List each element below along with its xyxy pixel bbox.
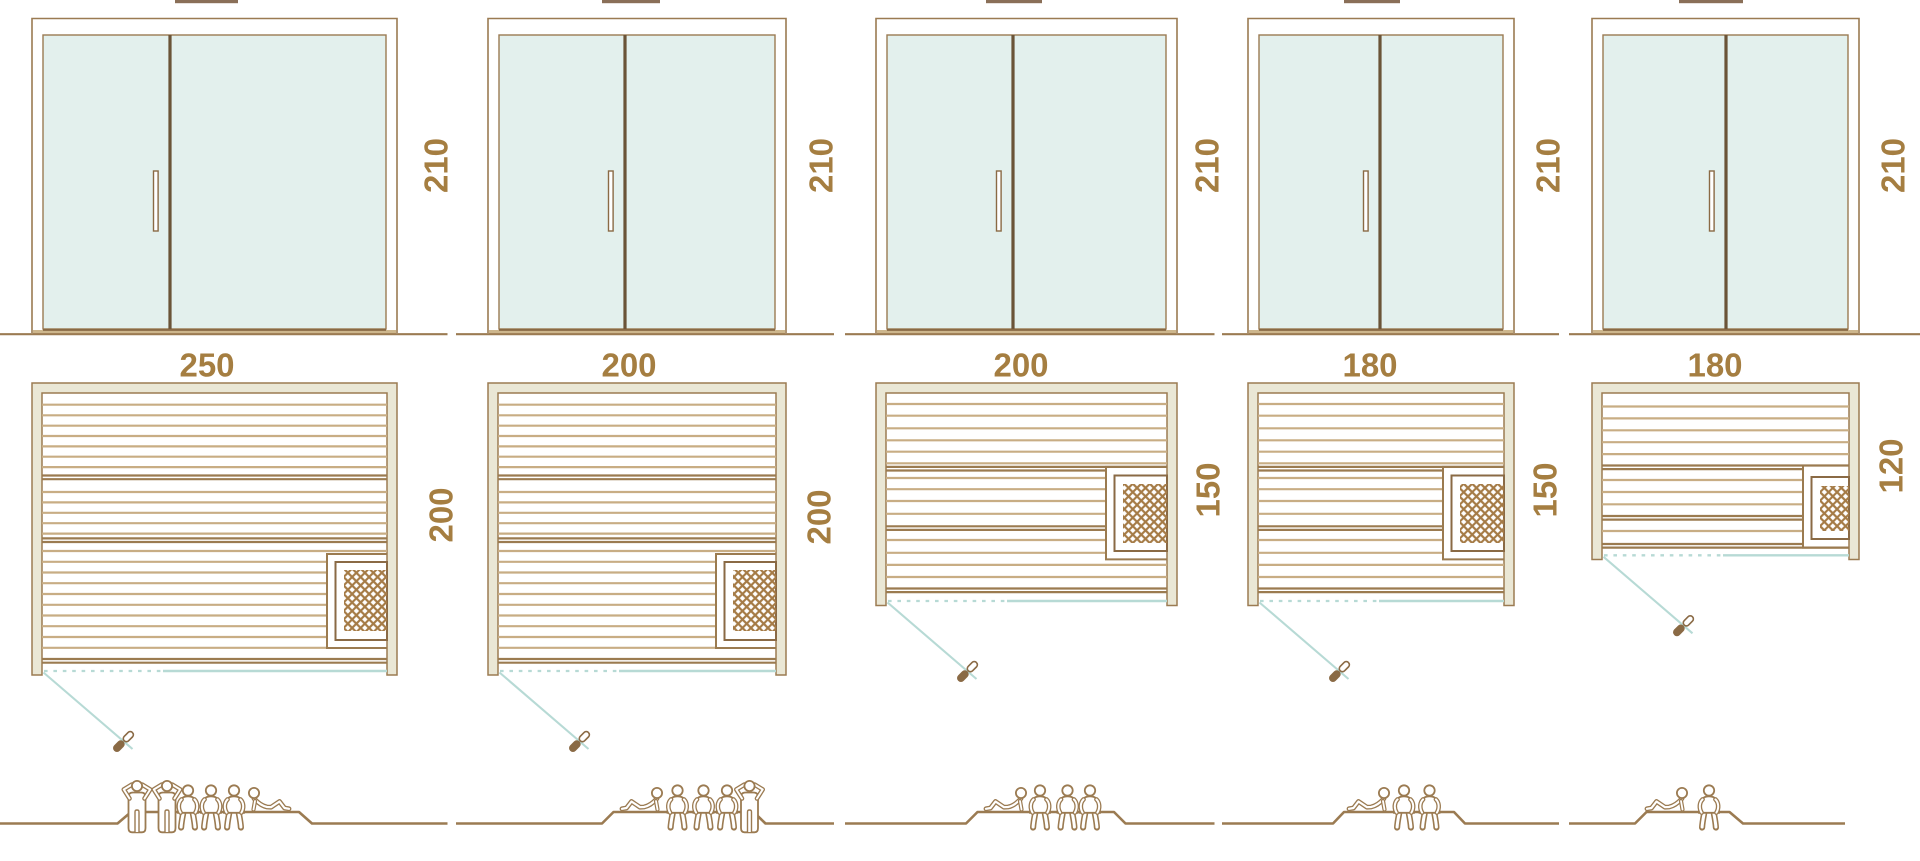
svg-text:250: 250 <box>179 347 234 384</box>
svg-text:180: 180 <box>1687 347 1742 384</box>
svg-text:180: 180 <box>1342 347 1397 384</box>
svg-text:150: 150 <box>1527 462 1564 517</box>
svg-text:210: 210 <box>1875 138 1912 193</box>
svg-text:200: 200 <box>601 347 656 384</box>
svg-text:150: 150 <box>1190 462 1227 517</box>
svg-text:210: 210 <box>803 138 840 193</box>
svg-text:210: 210 <box>1189 138 1226 193</box>
svg-text:120: 120 <box>1873 438 1910 493</box>
svg-text:200: 200 <box>801 489 838 544</box>
svg-text:210: 210 <box>1530 138 1567 193</box>
svg-text:210: 210 <box>418 138 455 193</box>
svg-text:200: 200 <box>993 347 1048 384</box>
svg-text:200: 200 <box>423 487 460 542</box>
